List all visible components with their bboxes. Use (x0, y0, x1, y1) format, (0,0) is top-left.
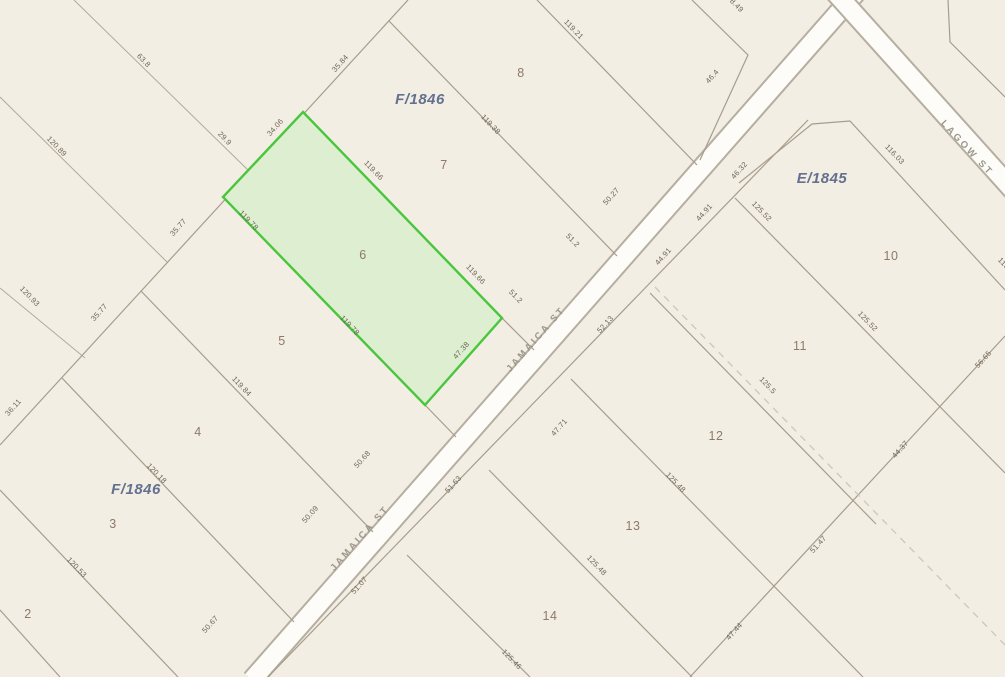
lot-number-label[interactable]: 6 (359, 248, 366, 262)
lot-number-label[interactable]: 7 (440, 158, 447, 172)
lot-number-label[interactable]: 13 (626, 519, 641, 533)
map-canvas[interactable]: 63.829.9120.89120.9336.1135.7735.7734.06… (0, 0, 1005, 677)
lot-number-label[interactable]: 4 (194, 425, 201, 439)
lot-number-label[interactable]: 2 (24, 607, 31, 621)
lot-number-label[interactable]: 11 (793, 339, 807, 353)
lot-number-label[interactable]: 3 (109, 517, 116, 531)
block-label: E/1845 (797, 170, 848, 187)
map-background (0, 0, 1005, 677)
lot-number-label[interactable]: 14 (543, 609, 558, 623)
lot-number-label[interactable]: 10 (884, 249, 899, 263)
block-label: F/1846 (395, 91, 445, 108)
lot-number-label[interactable]: 8 (517, 66, 524, 80)
parcel-map[interactable]: 63.829.9120.89120.9336.1135.7735.7734.06… (0, 0, 1005, 677)
lot-number-label[interactable]: 5 (278, 334, 285, 348)
lot-number-label[interactable]: 12 (709, 429, 724, 443)
block-label: F/1846 (111, 481, 161, 498)
